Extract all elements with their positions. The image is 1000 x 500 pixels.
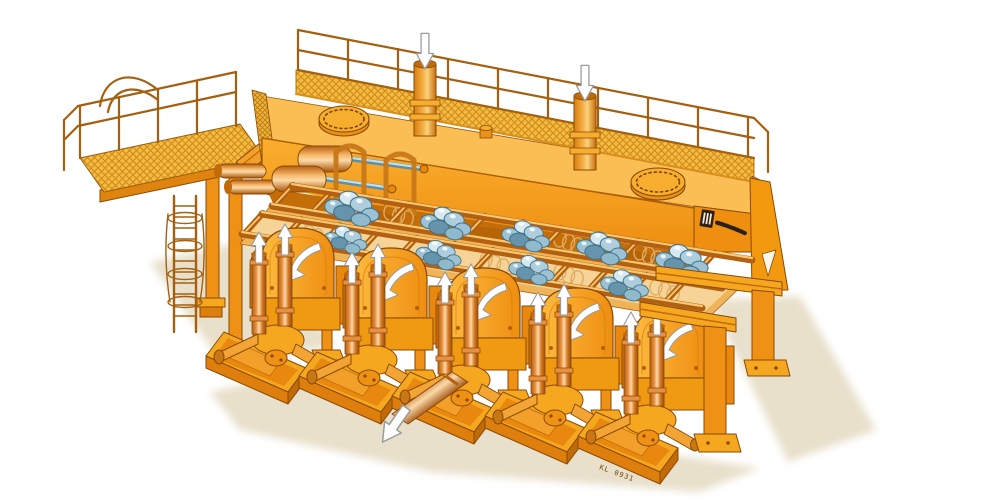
machine-illustration: KL 0931 <box>0 0 1000 500</box>
inlet-pipe-1 <box>410 60 440 136</box>
manhole-cover-2 <box>631 168 685 200</box>
manhole-cover-1 <box>319 106 369 136</box>
illustration-canvas: KL 0931 <box>0 0 1000 500</box>
deck-vent-stub <box>480 126 492 139</box>
foot-plate <box>694 434 741 452</box>
foot-plate <box>744 360 790 376</box>
end-diagonal-brace <box>750 178 788 290</box>
inlet-pipe-2 <box>570 92 600 170</box>
